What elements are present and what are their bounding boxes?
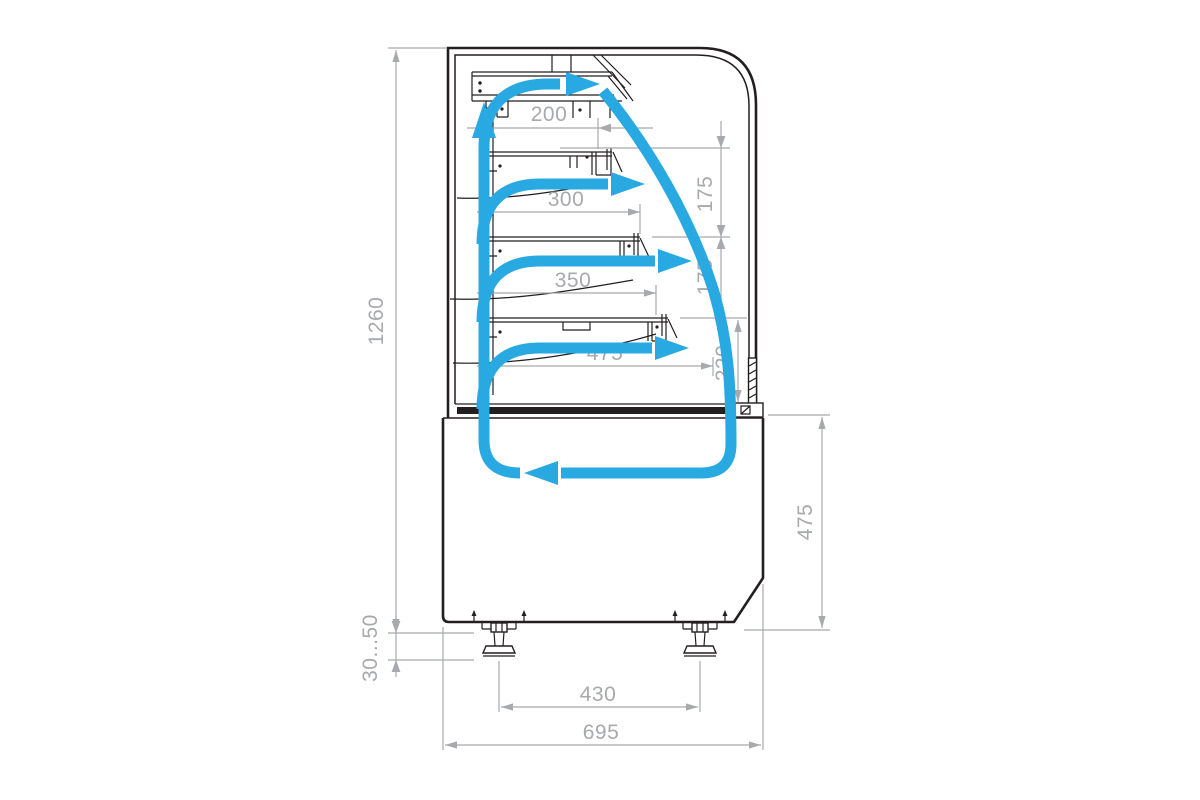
deflector-curve-2 <box>450 280 633 299</box>
canopy-bracket-screw <box>500 107 503 110</box>
dim-label-shelf2-depth: 300 <box>548 188 585 211</box>
airflow <box>472 72 731 485</box>
shelf-1 <box>487 148 622 175</box>
deck-plate <box>457 407 733 414</box>
dim-base-height: 475 <box>794 417 822 628</box>
shelf-3-screw <box>498 330 501 333</box>
shelf-3-surface <box>487 318 668 337</box>
airflow-shelf-arrow-1-head <box>611 172 645 196</box>
airflow-shelf-arrow-3 <box>482 348 652 409</box>
top-duct <box>552 55 571 72</box>
canopy-screw <box>478 89 481 92</box>
ext-left-stack <box>388 48 474 660</box>
leg-left <box>472 610 527 656</box>
dim-label-leg-adjustment: 30...50 <box>359 614 382 682</box>
dim-overall-depth: 695 <box>445 721 761 745</box>
leg-pin-tips <box>673 610 728 616</box>
base-cabinet <box>443 418 763 622</box>
dim-label-shelf1-depth: 200 <box>531 103 568 126</box>
technical-drawing-canvas: 1260 30...50 200 300 350 475 175 175 220… <box>0 0 1200 800</box>
shelf-1-surface <box>487 152 612 171</box>
shelf-3-lamp-recess <box>563 322 590 330</box>
leg-foot-pad <box>684 646 716 653</box>
dim-label-total-height: 1260 <box>365 297 388 346</box>
airflow-shelf-arrow-3-head <box>655 336 689 360</box>
leg-pin-tips <box>472 610 527 616</box>
canopy-bracket-screw <box>578 108 581 111</box>
dim-label-gap-1: 175 <box>694 176 717 213</box>
dim-total-height: 1260 <box>365 50 396 631</box>
shelf-2-surface <box>487 237 640 256</box>
leg-right <box>673 610 728 656</box>
shelf-2-screw <box>498 249 501 252</box>
dim-leg-spacing: 430 <box>501 683 698 707</box>
dim-label-leg-spacing: 430 <box>580 683 617 706</box>
shelf-3-screw <box>655 325 658 328</box>
shelf-2-screw <box>627 244 630 247</box>
dim-label-base-height: 475 <box>794 504 817 541</box>
leg-foot-pad <box>483 646 515 653</box>
dim-leg-adjustment: 30...50 <box>359 614 400 682</box>
airflow-shelf-arrow-2-head <box>658 249 692 273</box>
shelf-3 <box>487 314 677 341</box>
display-case-cross-section: 1260 30...50 200 300 350 475 175 175 220… <box>0 0 1200 800</box>
dim-label-overall-depth: 695 <box>583 721 620 744</box>
airflow-return-arrow-head <box>524 461 558 485</box>
deck-corner-block <box>735 403 763 417</box>
leg-bolt-head <box>692 623 708 632</box>
shelf-1-screw <box>585 155 588 158</box>
canopy-screw <box>478 81 481 84</box>
leg-bolt-head <box>491 623 507 632</box>
dim-label-shelf3-depth: 350 <box>555 269 592 292</box>
shelf-1-screw <box>498 164 501 167</box>
ext-base-height <box>744 415 830 630</box>
